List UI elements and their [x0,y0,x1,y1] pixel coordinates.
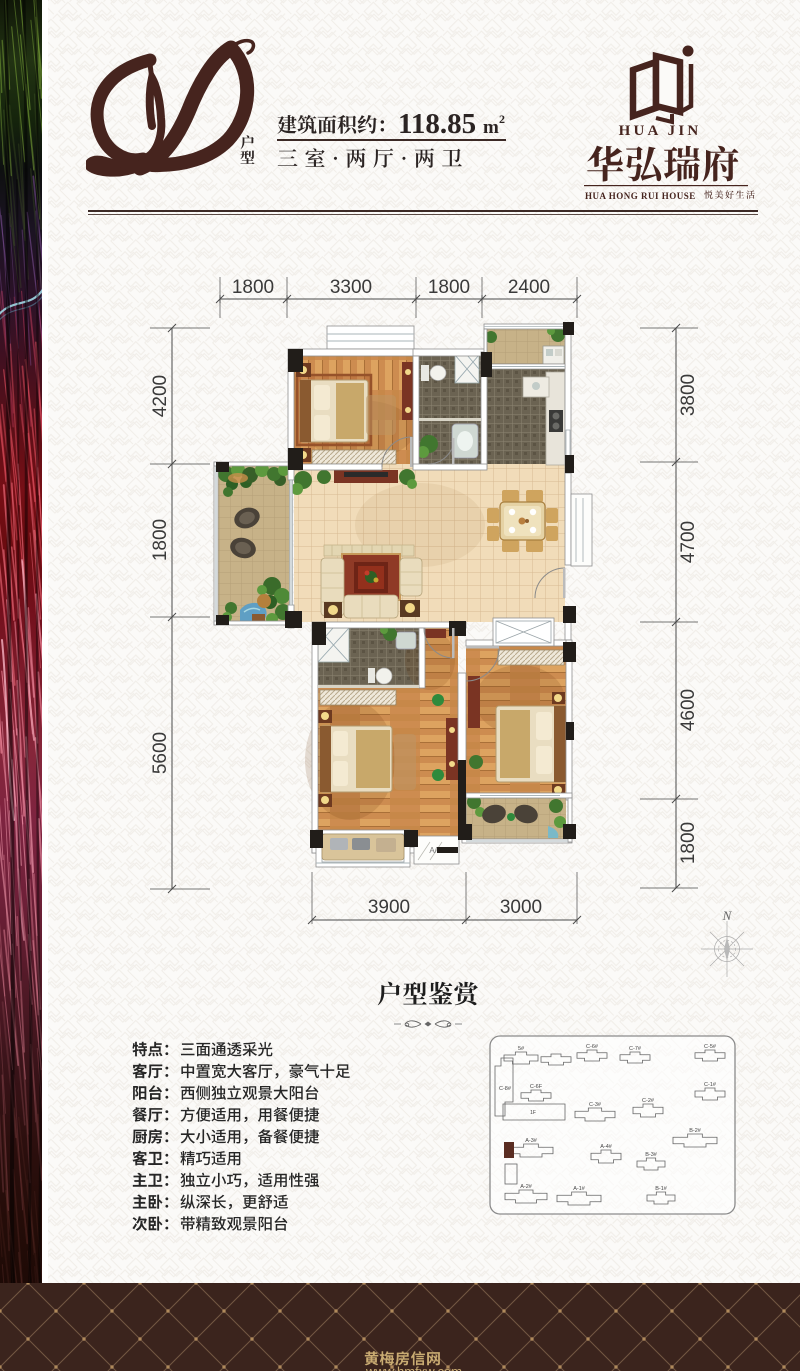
svg-text:HUA HONG RUI HOUSE: HUA HONG RUI HOUSE [585,191,696,201]
svg-text:5#: 5# [518,1046,525,1052]
svg-text:1800: 1800 [150,519,171,561]
svg-text:B-2#: B-2# [689,1128,702,1134]
svg-text:1800: 1800 [232,277,274,298]
svg-text:2: 2 [499,112,505,126]
svg-text:5600: 5600 [150,732,171,774]
svg-text:4200: 4200 [150,375,171,417]
svg-text:C-7#: C-7# [629,1046,642,1052]
svg-text:A-2#: A-2# [520,1184,533,1190]
svg-text:3900: 3900 [368,897,410,918]
svg-text:A-4#: A-4# [600,1144,613,1150]
svg-text:C-5#: C-5# [704,1044,717,1050]
svg-text:C-1#: C-1# [704,1082,717,1088]
svg-text:1800: 1800 [678,822,699,864]
svg-text:B-1#: B-1# [655,1186,668,1192]
svg-text:2400: 2400 [508,277,550,298]
svg-text:1F: 1F [530,1110,536,1116]
svg-text:4700: 4700 [678,521,699,563]
svg-text:C-8#: C-8# [499,1086,512,1092]
svg-text:A-3#: A-3# [525,1138,538,1144]
svg-text:1800: 1800 [428,277,470,298]
svg-text:4600: 4600 [678,689,699,731]
svg-text:N: N [722,908,733,923]
svg-text:B-3#: B-3# [645,1152,658,1158]
svg-text:C-6F: C-6F [530,1084,543,1090]
svg-text:3000: 3000 [500,897,542,918]
svg-text:3800: 3800 [678,374,699,416]
svg-text:118.85: 118.85 [398,108,476,140]
svg-text:C-2#: C-2# [642,1098,655,1104]
svg-text:C-6#: C-6# [586,1044,599,1050]
svg-text:C-3#: C-3# [589,1102,602,1108]
svg-text:www.hmfxw.com: www.hmfxw.com [365,1364,462,1371]
svg-text:3300: 3300 [330,277,372,298]
svg-text:A-1#: A-1# [573,1186,586,1192]
svg-text:m: m [483,117,499,138]
